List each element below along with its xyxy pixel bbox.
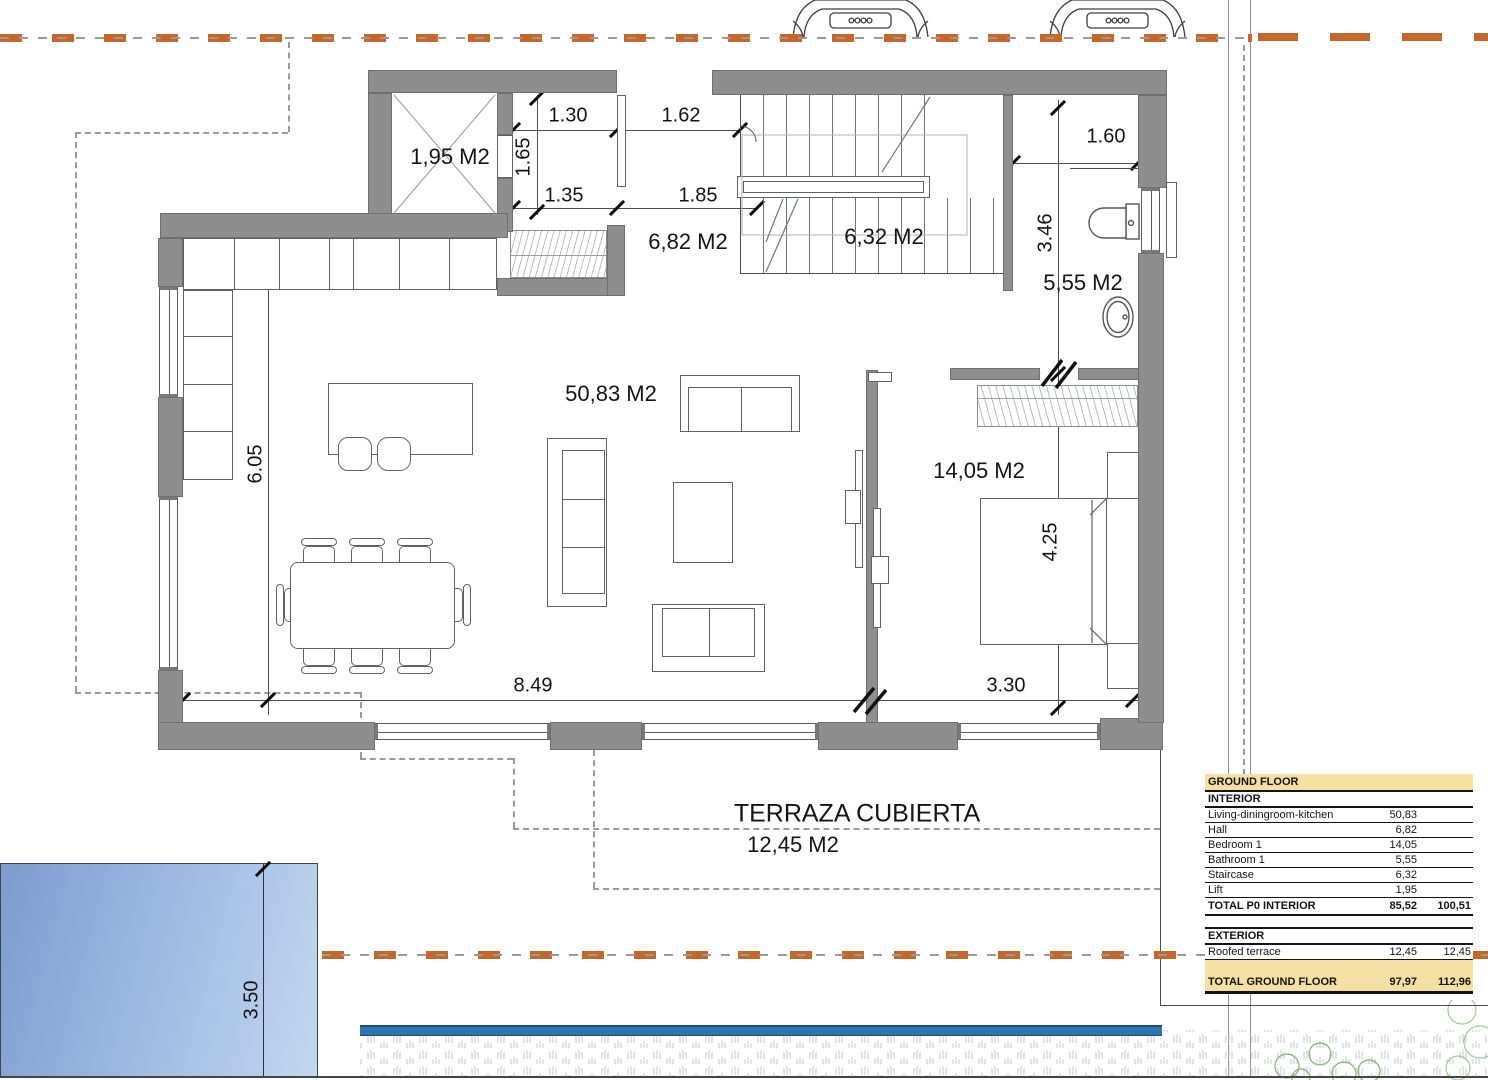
stair-treads xyxy=(740,95,930,176)
dining-chair xyxy=(349,666,385,674)
room-area-label-staircase: 6,32 M2 xyxy=(844,224,924,250)
table-row: Bathroom 15,55 xyxy=(1205,853,1473,868)
dim-line xyxy=(268,235,269,715)
roof-outline xyxy=(75,132,77,692)
hall-closet xyxy=(510,230,607,278)
pool-edge-channel xyxy=(360,1025,1162,1036)
dining-chair xyxy=(463,584,471,626)
dim-line xyxy=(537,95,538,215)
sofa-cushions xyxy=(562,450,605,594)
wall xyxy=(950,368,1040,380)
floor-plan-drawing: 1,95 M2 6,82 M2 6,32 M2 5,55 M2 50,83 M2… xyxy=(0,0,1488,1080)
dim-label: 4.25 xyxy=(1040,523,1063,562)
dim-label: 1.65 xyxy=(513,138,536,177)
plot-boundary-line xyxy=(1258,33,1488,41)
table-row: EXTERIOR xyxy=(1205,929,1473,945)
sink-plan-icon xyxy=(1103,297,1133,337)
table-row: Living-diningroom-kitchen50,83 xyxy=(1205,808,1473,823)
bedroom-wardrobe xyxy=(977,385,1138,427)
dim-label: 1.30 xyxy=(549,105,588,128)
terrace-outline xyxy=(360,758,513,760)
dim-label: 1.60 xyxy=(1087,126,1126,149)
dim-label: 1.85 xyxy=(679,185,718,208)
dim-line xyxy=(513,130,740,131)
swimming-pool xyxy=(0,863,318,1078)
table-row xyxy=(1205,960,1473,973)
area-table: GROUND FLOORINTERIORLiving-diningroom-ki… xyxy=(1205,774,1473,994)
wall xyxy=(607,225,625,296)
wall xyxy=(712,70,1167,95)
roof-outline xyxy=(288,42,290,132)
terrace-outline xyxy=(513,758,515,828)
dim-label: 1.35 xyxy=(545,185,584,208)
dining-chair xyxy=(397,538,433,546)
dim-label: 1.62 xyxy=(662,105,701,128)
dim-label: 3.46 xyxy=(1035,214,1058,253)
sliding-door-handle xyxy=(871,556,889,584)
table-row: Staircase6,32 xyxy=(1205,868,1473,883)
toilet-plan-icon xyxy=(1089,204,1139,239)
wall xyxy=(368,70,617,93)
wall xyxy=(1138,253,1164,723)
roof-outline xyxy=(75,132,288,134)
table-row: Bedroom 114,05 xyxy=(1205,838,1473,853)
wall xyxy=(497,93,513,135)
dining-chair xyxy=(397,666,433,674)
dim-label: 3.30 xyxy=(987,675,1026,698)
stair-handrail xyxy=(743,181,924,193)
window xyxy=(1141,188,1160,253)
dim-label: 6.05 xyxy=(245,445,268,484)
window xyxy=(159,287,178,397)
table-row: Hall6,82 xyxy=(1205,823,1473,838)
table-row xyxy=(1205,916,1473,929)
dim-line xyxy=(1013,163,1138,164)
room-area-label-lift: 1,95 M2 xyxy=(410,144,490,170)
window-ledge xyxy=(1166,182,1177,258)
window xyxy=(159,497,178,670)
room-area-label-living: 50,83 M2 xyxy=(565,381,657,407)
dining-chair xyxy=(276,584,284,626)
dim-label: 8.49 xyxy=(514,675,553,698)
wall xyxy=(1138,95,1167,188)
room-area-label-bathroom: 5,55 M2 xyxy=(1043,270,1123,296)
wall xyxy=(158,722,375,750)
wall xyxy=(158,238,183,287)
kitchen-counter xyxy=(183,238,497,290)
bush-plan-icon xyxy=(1275,1043,1380,1080)
lift-door xyxy=(497,135,513,178)
dining-chair xyxy=(301,538,337,546)
neighbour-plot-dashed-line xyxy=(1243,45,1245,775)
car-front-outline-icon xyxy=(1050,0,1185,37)
bar-stool xyxy=(377,437,411,471)
wall-stair-bath-divider xyxy=(1003,95,1013,291)
wall xyxy=(160,213,508,238)
wall xyxy=(368,93,392,215)
table-row: TOTAL P0 INTERIOR85,52100,51 xyxy=(1205,898,1473,916)
table-row: TOTAL GROUND FLOOR97,97112,96 xyxy=(1205,973,1473,994)
dim-line xyxy=(513,208,757,209)
sliding-door-handle xyxy=(845,490,861,524)
dining-chair xyxy=(349,538,385,546)
dim-line xyxy=(183,700,1138,701)
table-row: INTERIOR xyxy=(1205,792,1473,808)
terrace-title: TERRAZA CUBIERTA xyxy=(734,800,980,829)
table-row: Lift1,95 xyxy=(1205,883,1473,898)
wall xyxy=(158,397,183,497)
terrace-right-edge xyxy=(1160,750,1161,1006)
sofa-cushions xyxy=(662,608,755,657)
wall xyxy=(818,722,958,750)
ground-top-edge xyxy=(1160,1005,1488,1006)
table-row: GROUND FLOOR xyxy=(1205,774,1473,792)
dim-label: 3.50 xyxy=(241,981,264,1020)
car-front-outline-icon xyxy=(793,0,928,37)
sofa-cushions xyxy=(688,387,792,432)
nightstand xyxy=(1107,643,1140,689)
terrace-area-label: 12,45 M2 xyxy=(747,832,839,858)
terrace-outline xyxy=(593,888,1160,890)
window xyxy=(375,723,550,740)
bathroom-shelf xyxy=(1070,168,1138,169)
window xyxy=(642,723,818,740)
bush-plan-icon xyxy=(1446,1000,1488,1080)
room-area-label-bedroom: 14,05 M2 xyxy=(933,458,1025,484)
stair-edge xyxy=(740,273,1003,274)
drawing-bottom-edge xyxy=(0,1076,1488,1078)
coffee-table xyxy=(673,482,733,563)
kitchen-counter xyxy=(183,290,233,480)
terrace-outline xyxy=(75,692,360,694)
terrace-outline xyxy=(593,750,595,888)
wall xyxy=(550,722,642,750)
nightstand xyxy=(1107,452,1140,499)
bar-stool xyxy=(338,437,372,471)
plot-boundary-dash xyxy=(0,37,1252,39)
room-area-label-hall: 6,82 M2 xyxy=(648,229,728,255)
wall xyxy=(1078,368,1143,380)
pool-dim-line xyxy=(263,863,264,1078)
dining-chair xyxy=(301,666,337,674)
bed xyxy=(980,498,1107,645)
table-row: Roofed terrace12,4512,45 xyxy=(1205,945,1473,960)
wall xyxy=(497,278,625,296)
sliding-door-panel xyxy=(868,372,892,382)
window xyxy=(958,723,1100,740)
dining-table xyxy=(290,562,455,649)
entry-door-leaf xyxy=(617,95,626,187)
